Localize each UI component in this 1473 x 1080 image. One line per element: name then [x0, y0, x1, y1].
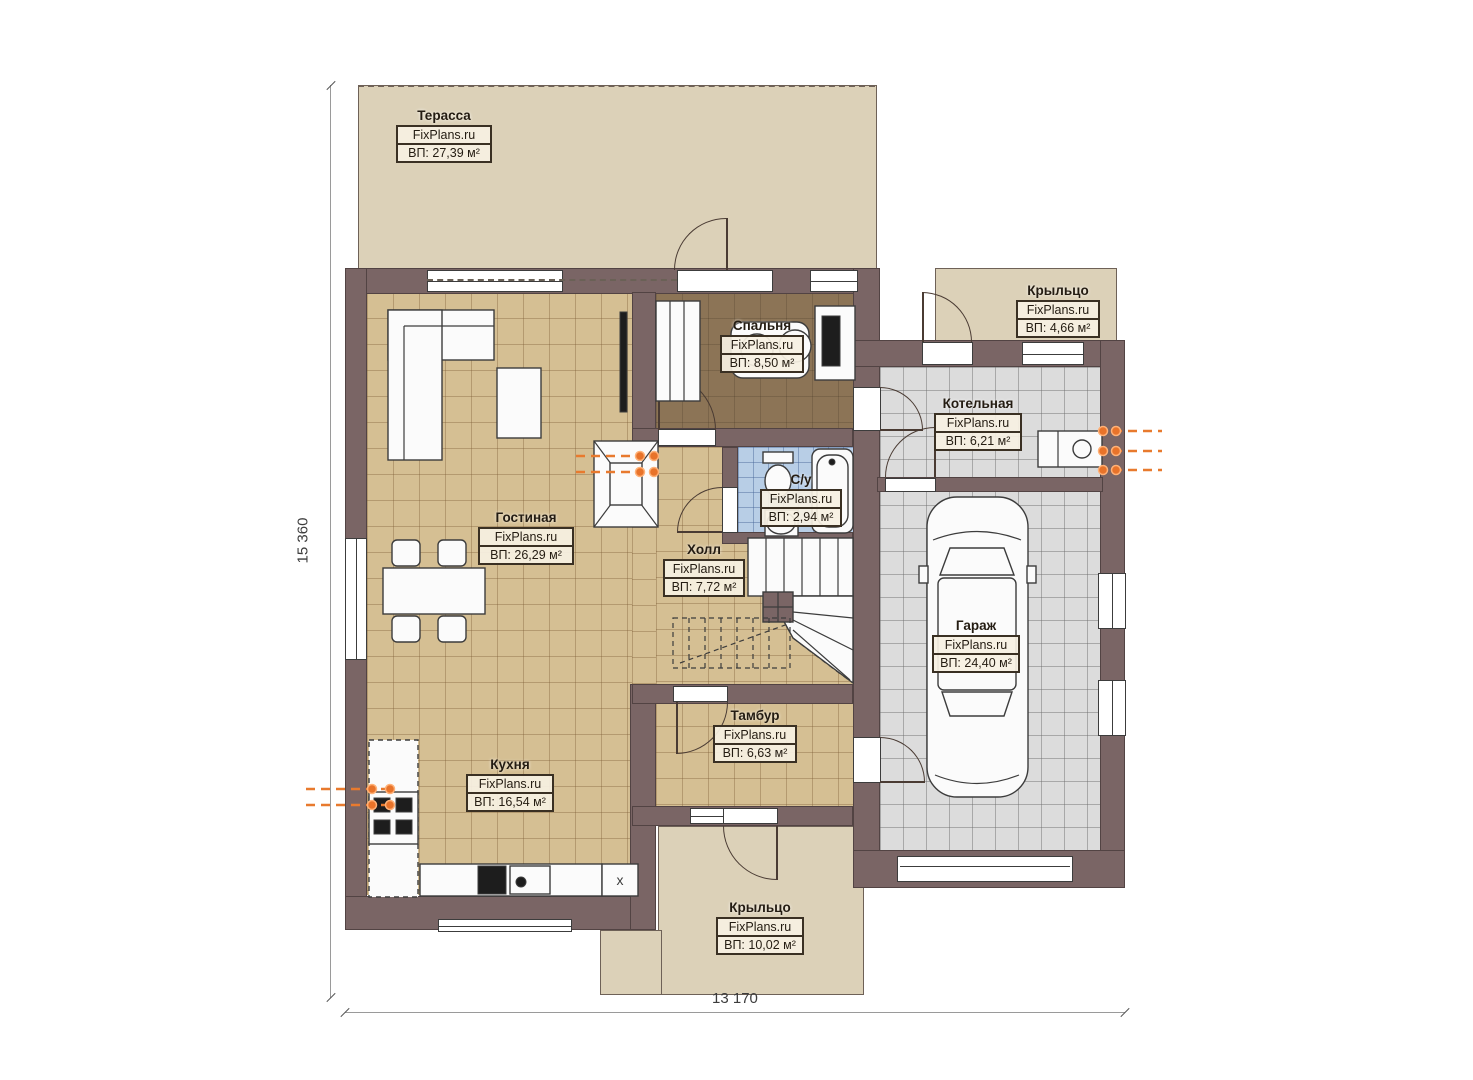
room-area: ВП: 24,40 м² [934, 653, 1018, 671]
room-area: ВП: 6,21 м² [936, 431, 1020, 449]
room-name: С/у [760, 472, 842, 487]
dishwasher [478, 866, 506, 894]
room-name: Терасса [396, 108, 492, 123]
wardrobe [656, 301, 700, 401]
room-brand: FixPlans.ru [665, 561, 743, 577]
room-label-living: Гостиная FixPlans.ru ВП: 26,29 м² [478, 510, 574, 565]
room-name: Крыльцо [716, 900, 804, 915]
room-name: Тамбур [713, 708, 797, 723]
room-area: ВП: 7,72 м² [665, 577, 743, 595]
vent-arrows-boiler [1098, 427, 1162, 475]
room-name: Спальня [720, 318, 804, 333]
room-brand: FixPlans.ru [762, 491, 840, 507]
room-label-porch-top: Крыльцо FixPlans.ru ВП: 4,66 м² [1016, 283, 1100, 338]
room-label-kitchen: Кухня FixPlans.ru ВП: 16,54 м² [466, 757, 554, 812]
boiler [1038, 431, 1102, 467]
monitor [822, 316, 840, 366]
room-label-bathroom: С/у FixPlans.ru ВП: 2,94 м² [760, 472, 842, 527]
room-brand: FixPlans.ru [480, 529, 572, 545]
room-brand: FixPlans.ru [934, 637, 1018, 653]
room-label-hall: Холл FixPlans.ru ВП: 7,72 м² [663, 542, 745, 597]
room-label-bedroom: Спальня FixPlans.ru ВП: 8,50 м² [720, 318, 804, 373]
room-area: ВП: 8,50 м² [722, 353, 802, 371]
fireplace [594, 441, 658, 527]
room-label-garage: Гараж FixPlans.ru ВП: 24,40 м² [932, 618, 1020, 673]
room-area: ВП: 26,29 м² [480, 545, 572, 563]
room-name: Котельная [934, 396, 1022, 411]
room-area: ВП: 27,39 м² [398, 143, 490, 161]
room-brand: FixPlans.ru [936, 415, 1020, 431]
room-label-porch-bottom: Крыльцо FixPlans.ru ВП: 10,02 м² [716, 900, 804, 955]
room-name: Холл [663, 542, 745, 557]
tv [620, 312, 627, 412]
room-brand: FixPlans.ru [468, 776, 552, 792]
room-name: Гараж [932, 618, 1020, 633]
room-brand: FixPlans.ru [1018, 302, 1098, 318]
floor-plan: x [0, 0, 1473, 1080]
room-area: ВП: 10,02 м² [718, 935, 802, 953]
toilet-tank [763, 452, 793, 463]
room-label-vestibule: Тамбур FixPlans.ru ВП: 6,63 м² [713, 708, 797, 763]
room-brand: FixPlans.ru [715, 727, 795, 743]
coffee-table [497, 368, 541, 438]
room-name: Гостиная [478, 510, 574, 525]
room-area: ВП: 2,94 м² [762, 507, 840, 525]
kitchen-unit-x-label: x [617, 872, 624, 888]
room-area: ВП: 16,54 м² [468, 792, 552, 810]
room-name: Крыльцо [1016, 283, 1100, 298]
dining-set [383, 540, 485, 642]
room-label-boiler: Котельная FixPlans.ru ВП: 6,21 м² [934, 396, 1022, 451]
room-brand: FixPlans.ru [718, 919, 802, 935]
room-area: ВП: 4,66 м² [1018, 318, 1098, 336]
room-area: ВП: 6,63 м² [715, 743, 795, 761]
room-brand: FixPlans.ru [722, 337, 802, 353]
room-brand: FixPlans.ru [398, 127, 490, 143]
room-name: Кухня [466, 757, 554, 772]
room-label-terrace: Терасса FixPlans.ru ВП: 27,39 м² [396, 108, 492, 163]
stairs-lower-dashed [673, 618, 790, 668]
sofa [388, 310, 494, 460]
